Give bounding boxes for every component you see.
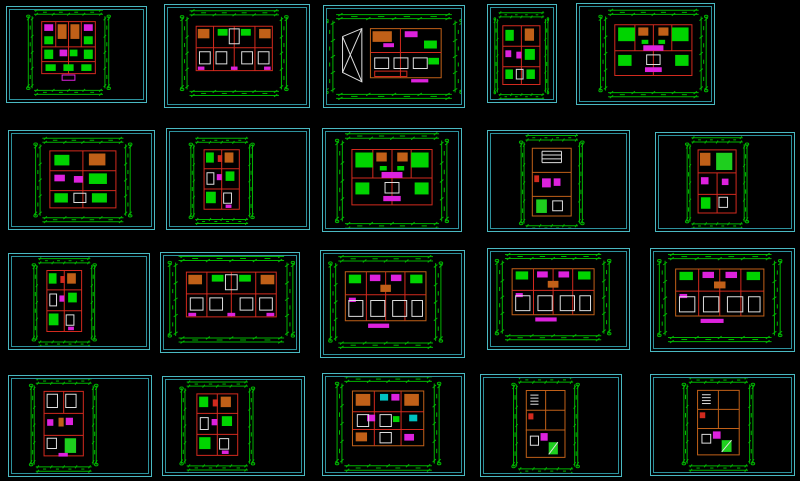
floor-plan-drawing-r1c3	[327, 9, 461, 104]
floor-plan-drawing-r3c4	[491, 252, 626, 346]
plan-thumbnail-r4c4[interactable]	[480, 374, 622, 477]
drawing-frame-r1c1	[9, 9, 144, 100]
plan-thumbnail-r1c1[interactable]	[6, 6, 147, 103]
floor-plan-drawing-r1c5	[580, 7, 711, 101]
drawing-frame-r2c3	[325, 131, 459, 229]
floor-plan-drawing-r4c3	[326, 377, 461, 472]
floor-plan-drawing-r2c1	[12, 134, 151, 226]
plan-thumbnail-r3c5[interactable]	[650, 248, 795, 352]
drawing-frame-r3c1	[11, 256, 147, 347]
drawing-frame-r4c4	[483, 377, 619, 474]
floor-plan-drawing-r3c1	[12, 257, 146, 346]
plan-geometry	[615, 25, 692, 76]
drawing-frame-r2c5	[658, 135, 792, 229]
plan-geometry	[204, 150, 239, 210]
plan-geometry	[343, 29, 442, 83]
plan-geometry	[503, 26, 540, 85]
plan-thumbnail-r2c5[interactable]	[655, 132, 795, 232]
plan-geometry	[676, 269, 764, 323]
drawing-frame-r4c1	[11, 378, 149, 474]
plan-thumbnail-r3c4[interactable]	[487, 248, 630, 350]
drawing-frame-r3c2	[163, 255, 297, 350]
plan-geometry	[352, 391, 423, 446]
plan-geometry	[47, 270, 82, 331]
floor-plan-drawing-r4c5	[654, 378, 791, 472]
drawing-frame-r3c3	[323, 253, 462, 355]
plan-thumbnail-r1c4[interactable]	[487, 4, 557, 103]
plan-thumbnail-r4c2[interactable]	[162, 376, 305, 476]
plan-thumbnail-r3c1[interactable]	[8, 253, 150, 350]
plan-thumbnail-r1c3[interactable]	[323, 5, 465, 108]
plan-thumbnail-r4c5[interactable]	[650, 374, 795, 476]
plan-geometry	[526, 391, 565, 458]
drawing-frame-r4c5	[653, 377, 792, 473]
plan-thumbnail-r1c2[interactable]	[164, 4, 310, 108]
plan-thumbnail-r2c4[interactable]	[487, 130, 630, 232]
floor-plan-drawing-r3c2	[164, 256, 296, 349]
plan-thumbnail-r1c5[interactable]	[576, 3, 715, 105]
plan-thumbnail-r3c2[interactable]	[160, 252, 300, 353]
drawing-frame-r3c4	[490, 251, 627, 347]
plan-geometry	[698, 390, 740, 455]
plan-geometry	[186, 272, 276, 317]
floor-plan-drawing-r3c3	[324, 254, 461, 354]
drawing-frame-r2c2	[169, 131, 307, 227]
floor-plan-drawing-r2c3	[326, 132, 458, 228]
drawing-frame-r1c5	[579, 6, 712, 102]
plan-geometry	[197, 394, 238, 456]
floor-plan-drawing-r4c4	[484, 378, 618, 473]
plan-thumbnail-r4c3[interactable]	[322, 373, 465, 476]
plan-geometry	[44, 391, 83, 456]
plan-geometry	[345, 272, 426, 328]
floor-plan-drawing-r2c4	[491, 134, 626, 228]
floor-plan-drawing-r1c1	[10, 10, 143, 99]
plan-geometry	[532, 148, 571, 216]
plan-thumbnail-r2c2[interactable]	[166, 128, 310, 230]
floor-plan-drawing-r1c2	[168, 8, 306, 104]
floor-plan-drawing-r4c2	[166, 380, 301, 472]
floor-plan-drawing-r3c5	[654, 252, 791, 348]
plan-geometry	[50, 151, 116, 208]
plan-thumbnail-r2c1[interactable]	[8, 130, 155, 230]
floor-plan-drawing-r1c4	[491, 8, 553, 99]
drawing-frame-r3c5	[653, 251, 792, 349]
drawing-frame-r1c4	[490, 7, 554, 100]
floor-plan-drawing-r2c5	[659, 136, 791, 228]
drawing-frame-r2c4	[490, 133, 627, 229]
plan-geometry	[42, 22, 96, 81]
cad-sheet-canvas	[0, 0, 800, 481]
plan-geometry	[196, 26, 272, 70]
floor-plan-drawing-r4c1	[12, 379, 148, 473]
plan-geometry	[698, 150, 736, 213]
drawing-frame-r4c2	[165, 379, 302, 473]
plan-thumbnail-r2c3[interactable]	[322, 128, 462, 232]
plan-geometry	[352, 150, 432, 205]
drawing-frame-r2c1	[11, 133, 152, 227]
drawing-frame-r1c3	[326, 8, 462, 105]
drawing-frame-r1c2	[167, 7, 307, 105]
floor-plan-drawing-r2c2	[170, 132, 306, 226]
plan-geometry	[512, 269, 594, 322]
plan-thumbnail-r4c1[interactable]	[8, 375, 152, 477]
drawing-frame-r4c3	[325, 376, 462, 473]
plan-thumbnail-r3c3[interactable]	[320, 250, 465, 358]
